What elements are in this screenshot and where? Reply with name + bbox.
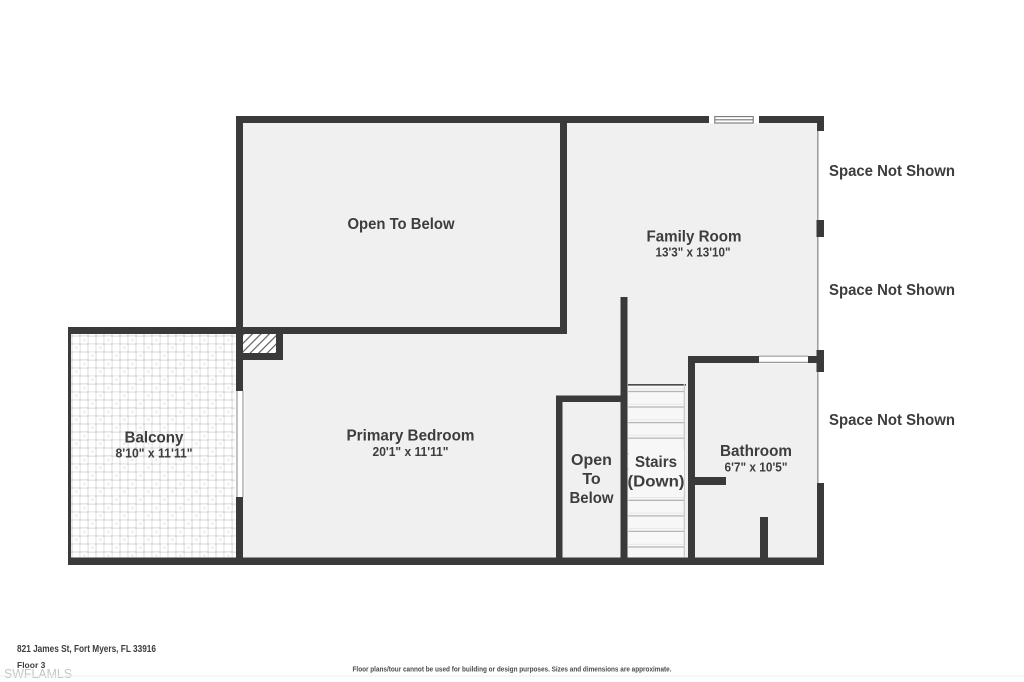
svg-text:Open: Open [571, 452, 612, 469]
svg-text:Stairs: Stairs [635, 454, 677, 471]
svg-text:Space Not Shown: Space Not Shown [829, 282, 955, 299]
svg-text:(Down): (Down) [628, 474, 685, 491]
svg-text:Floor plans/tour cannot be use: Floor plans/tour cannot be used for buil… [353, 667, 672, 674]
svg-text:Space Not Shown: Space Not Shown [829, 412, 955, 429]
svg-text:13'3" x 13'10": 13'3" x 13'10" [656, 246, 731, 260]
svg-text:Open To Below: Open To Below [348, 216, 456, 233]
svg-text:Family Room: Family Room [647, 229, 742, 246]
svg-text:Bathroom: Bathroom [720, 443, 792, 460]
svg-text:Below: Below [570, 490, 615, 507]
svg-text:821 James St, Fort Myers, FL 3: 821 James St, Fort Myers, FL 33916 [17, 644, 156, 655]
svg-text:6'7" x 10'5": 6'7" x 10'5" [725, 461, 788, 475]
svg-text:Balcony: Balcony [125, 430, 184, 447]
svg-text:To: To [582, 471, 601, 488]
svg-text:Primary Bedroom: Primary Bedroom [347, 428, 475, 445]
svg-text:20'1" x 11'11": 20'1" x 11'11" [373, 445, 449, 459]
svg-text:8'10" x 11'11": 8'10" x 11'11" [116, 447, 193, 461]
svg-text:Space Not Shown: Space Not Shown [829, 163, 955, 180]
svg-text:SWFLAMLS: SWFLAMLS [4, 666, 72, 681]
